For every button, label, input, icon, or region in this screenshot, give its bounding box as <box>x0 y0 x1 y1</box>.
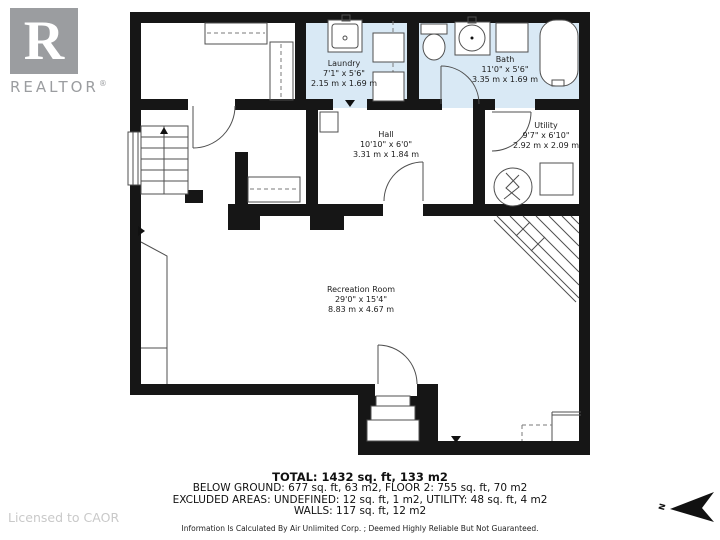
svg-text:3.31 m x 1.84 m: 3.31 m x 1.84 m <box>353 150 419 159</box>
svg-text:8.83 m x 4.67 m: 8.83 m x 4.67 m <box>328 305 394 314</box>
dryer-icon <box>373 72 404 101</box>
room-label-utility: Utility 9'7" x 6'10" 2.92 m x 2.09 m <box>513 121 579 150</box>
svg-text:Utility: Utility <box>534 121 558 130</box>
svg-text:9'7" x 6'10": 9'7" x 6'10" <box>522 131 569 140</box>
fireplace-icon <box>141 242 167 384</box>
toilet-icon <box>421 24 447 60</box>
svg-text:2.15 m x 1.69 m: 2.15 m x 1.69 m <box>311 79 377 88</box>
svg-text:3.35 m x 1.69 m: 3.35 m x 1.69 m <box>472 75 538 84</box>
corner-closet <box>522 412 581 441</box>
water-heater-icon <box>494 168 532 206</box>
door-arc-stairs <box>193 106 235 148</box>
svg-text:2.92 m x 2.09 m: 2.92 m x 2.09 m <box>513 141 579 150</box>
room-label-recreation: Recreation Room 29'0" x 15'4" 8.83 m x 4… <box>327 285 395 314</box>
floorplan-page: R REALTOR® <box>0 0 720 540</box>
shower-icon <box>496 23 528 52</box>
svg-text:7'1" x 5'6": 7'1" x 5'6" <box>323 69 365 78</box>
door-arc-hall <box>384 162 423 201</box>
svg-text:29'0" x 15'4": 29'0" x 15'4" <box>335 295 387 304</box>
svg-text:Recreation Room: Recreation Room <box>327 285 395 294</box>
opening-marker-left-wall <box>138 226 145 236</box>
closet-rod-top <box>205 23 267 44</box>
svg-text:11'0" x 5'6": 11'0" x 5'6" <box>481 65 528 74</box>
svg-text:Hall: Hall <box>378 130 393 139</box>
svg-text:Laundry: Laundry <box>328 59 361 68</box>
svg-text:10'10" x 6'0": 10'10" x 6'0" <box>360 140 412 149</box>
license-text: Licensed to CAOR <box>8 510 119 525</box>
winder-stairs-icon <box>494 216 579 302</box>
hall-cabinet-icon <box>320 112 338 132</box>
washer-icon <box>373 33 404 62</box>
door-arc-rec-entry <box>378 345 417 384</box>
closet-rod-right <box>270 42 293 100</box>
bathtub-icon <box>540 20 578 86</box>
furnace-icon <box>540 163 573 195</box>
summary-below-ground: BELOW GROUND: 677 sq. ft, 63 m2, FLOOR 2… <box>0 483 720 495</box>
svg-text:Bath: Bath <box>496 55 515 64</box>
closet-rod-lower <box>248 177 300 202</box>
bathroom-sink-icon <box>455 17 490 55</box>
staircase-icon <box>141 126 188 194</box>
laundry-tub-icon <box>328 15 362 52</box>
floor-plan: Laundry 7'1" x 5'6" 2.15 m x 1.69 m Bath… <box>0 0 720 540</box>
room-label-hall: Hall 10'10" x 6'0" 3.31 m x 1.84 m <box>353 130 419 159</box>
